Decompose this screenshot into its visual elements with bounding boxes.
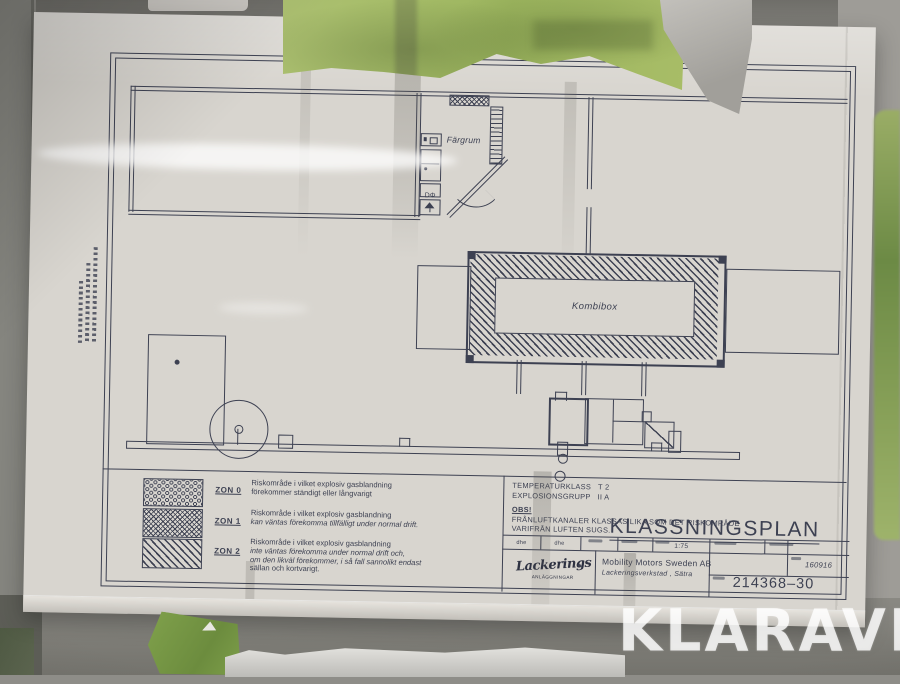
kombibox-booth: Kombibox — [466, 251, 727, 368]
fargrum-right-grille — [489, 106, 503, 164]
equipment-unit-mid — [584, 398, 644, 445]
date-cell: 160916 — [787, 554, 849, 577]
duct — [516, 360, 522, 394]
storage-dot — [175, 360, 180, 365]
corner-block — [468, 251, 476, 259]
equipment-unit-left — [548, 398, 589, 447]
explosion-group: EXPLOSIONSGRUPP II A — [512, 491, 609, 502]
signature-1: dhe — [516, 539, 526, 549]
kombibox-interior: Kombibox — [494, 277, 695, 337]
logo-sub-text: ANLÄGGNINGAR — [532, 574, 574, 580]
titleblock-grid: dhe dhe 1:75 Lackerings ANLÄGGNINGAR Mob… — [501, 535, 849, 599]
cabinet-dot — [424, 167, 427, 170]
fargrum-cabinet — [420, 149, 442, 181]
margin-note-line — [85, 263, 90, 343]
valve-symbol: DΦ — [420, 183, 441, 197]
cabinet-divider — [421, 163, 439, 164]
grid-line — [617, 538, 618, 551]
fan-hub — [234, 425, 243, 434]
corner-block — [719, 256, 727, 264]
margin-note-line — [78, 281, 83, 343]
bench-tab — [651, 442, 662, 451]
drawing-number-cell: 214368–30 — [708, 574, 848, 599]
bench-post — [668, 431, 681, 453]
legend-zon0-text: Riskområde i vilket explosiv gasblandnin… — [251, 479, 392, 499]
duct — [641, 362, 647, 396]
grid-line — [540, 536, 541, 549]
grid-line — [764, 540, 765, 553]
duct — [581, 361, 587, 395]
klassningsplan-sheet: DΦ Färgrum Kombibox — [23, 12, 876, 625]
field-label-smudge — [713, 577, 725, 580]
logo-cell: Lackerings ANLÄGGNINGAR — [501, 549, 595, 595]
paper-scrap-top-left — [148, 0, 248, 11]
kombibox-side-table-left — [416, 265, 472, 350]
legend-zon1-text: Riskområde i vilket explosiv gasblandnin… — [251, 509, 419, 530]
field-label-smudge — [621, 540, 637, 543]
corner-block — [717, 360, 725, 368]
company-subtitle: Lackeringsverkstad , Sätra — [602, 569, 693, 580]
klaravik-watermark: KLARAVIK — [618, 597, 900, 664]
grid-line — [580, 537, 581, 550]
scale-value: 1:75 — [674, 542, 688, 552]
symbol-mark — [430, 137, 438, 144]
kombibox-side-table-right — [725, 269, 841, 355]
kombibox-label: Kombibox — [496, 301, 694, 314]
green-background-right-edge — [874, 110, 900, 540]
foliage-bottom-left — [0, 628, 34, 675]
equipment-divider — [613, 421, 642, 423]
arrow-symbol — [419, 199, 440, 215]
arrow-stem — [429, 208, 430, 212]
obs-label: OBS! — [512, 505, 532, 515]
tape-tear-glint — [202, 621, 217, 633]
field-label-smudge — [769, 543, 793, 546]
margin-note — [76, 245, 104, 343]
legend-swatch-zon1 — [142, 508, 203, 538]
bench-tab — [399, 438, 410, 447]
fargrum-label: Färgrum — [447, 136, 481, 146]
legend-swatch-zon2 — [142, 538, 203, 569]
field-label-smudge — [588, 539, 602, 542]
drawing-number: 214368–30 — [733, 579, 815, 590]
legend-zon2-label: ZON 2 — [214, 546, 240, 555]
date-value: 160916 — [805, 560, 832, 570]
legend-swatch-zon0 — [143, 478, 204, 507]
field-label-smudge — [655, 540, 669, 543]
fargrum-top-grille — [449, 95, 489, 107]
wall-partition-lower — [586, 207, 592, 254]
tape-stain — [533, 20, 653, 50]
margin-note-line — [92, 247, 98, 343]
legend-zon1-label: ZON 1 — [215, 516, 241, 525]
note-line-2: VARIFRÅN LUFTEN SUGS. — [512, 524, 611, 535]
fargrum-cabinet-symbol — [421, 133, 442, 146]
field-label-smudge — [714, 542, 736, 545]
logo-dot — [578, 564, 581, 567]
grid-line — [652, 538, 653, 551]
corner-block — [466, 355, 474, 363]
signature-2: dhe — [554, 540, 564, 550]
company-name: Mobility Motors Sweden AB — [602, 558, 712, 570]
legend-zon2-text: Riskområde i vilket explosiv gasblandnin… — [250, 538, 422, 576]
legend-zon0-label: ZON 0 — [215, 485, 241, 494]
symbol-mark — [424, 137, 427, 141]
floor-box — [278, 435, 293, 449]
company-cell: Mobility Motors Sweden AB Lackeringsverk… — [594, 550, 709, 596]
field-label-smudge — [791, 557, 801, 560]
